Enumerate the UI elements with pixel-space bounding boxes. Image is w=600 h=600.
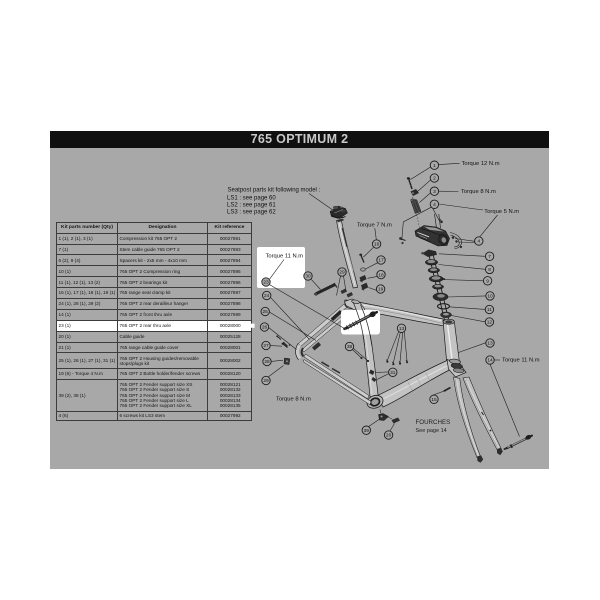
svg-text:2: 2 xyxy=(433,176,436,182)
svg-text:13: 13 xyxy=(399,326,405,332)
svg-text:15: 15 xyxy=(431,397,437,403)
svg-text:Torque 12 N.m: Torque 12 N.m xyxy=(462,161,500,167)
svg-text:Torque 11 N.m: Torque 11 N.m xyxy=(266,254,304,260)
svg-text:7: 7 xyxy=(488,254,491,260)
svg-text:12: 12 xyxy=(487,320,493,326)
svg-text:4: 4 xyxy=(477,239,480,245)
svg-text:18: 18 xyxy=(378,272,384,278)
svg-text:Torque 5 N.m: Torque 5 N.m xyxy=(484,209,519,215)
svg-text:1: 1 xyxy=(433,163,436,169)
svg-text:Torque 7 N.m: Torque 7 N.m xyxy=(357,223,392,229)
svg-text:8: 8 xyxy=(488,267,491,273)
svg-text:Torque 11 N.m: Torque 11 N.m xyxy=(502,358,540,364)
svg-text:31: 31 xyxy=(390,370,396,376)
svg-text:FOURCHES: FOURCHES xyxy=(416,419,451,426)
svg-text:25: 25 xyxy=(263,309,269,315)
svg-text:17: 17 xyxy=(378,258,384,264)
svg-text:Torque 8 N.m: Torque 8 N.m xyxy=(461,189,496,195)
svg-text:24: 24 xyxy=(264,293,270,299)
svg-text:LS1 : see page 60: LS1 : see page 60 xyxy=(227,196,276,202)
svg-text:3: 3 xyxy=(433,189,436,195)
svg-text:9: 9 xyxy=(486,279,489,285)
svg-text:20: 20 xyxy=(386,433,392,439)
svg-text:10: 10 xyxy=(487,294,493,300)
svg-text:27: 27 xyxy=(263,343,269,349)
svg-text:23: 23 xyxy=(263,280,269,286)
svg-text:4: 4 xyxy=(433,202,436,208)
svg-text:29: 29 xyxy=(339,270,345,276)
svg-text:38: 38 xyxy=(347,344,353,350)
svg-text:See page 14: See page 14 xyxy=(416,428,447,434)
svg-text:30: 30 xyxy=(305,274,311,280)
svg-text:14: 14 xyxy=(487,358,493,364)
svg-text:13: 13 xyxy=(487,341,493,347)
svg-text:19: 19 xyxy=(378,287,384,293)
svg-text:LS2 : see page 61: LS2 : see page 61 xyxy=(227,203,276,209)
svg-text:26: 26 xyxy=(262,325,268,331)
svg-text:11: 11 xyxy=(487,307,492,313)
svg-text:Seatpost parts kit following m: Seatpost parts kit following model : xyxy=(228,188,321,194)
svg-text:39: 39 xyxy=(364,428,370,434)
svg-text:16: 16 xyxy=(374,242,380,248)
svg-text:Torque 8 N.m: Torque 8 N.m xyxy=(276,397,311,403)
svg-text:29: 29 xyxy=(263,378,269,384)
svg-text:28: 28 xyxy=(264,359,270,365)
svg-text:LS3 : see page 62: LS3 : see page 62 xyxy=(227,210,276,216)
